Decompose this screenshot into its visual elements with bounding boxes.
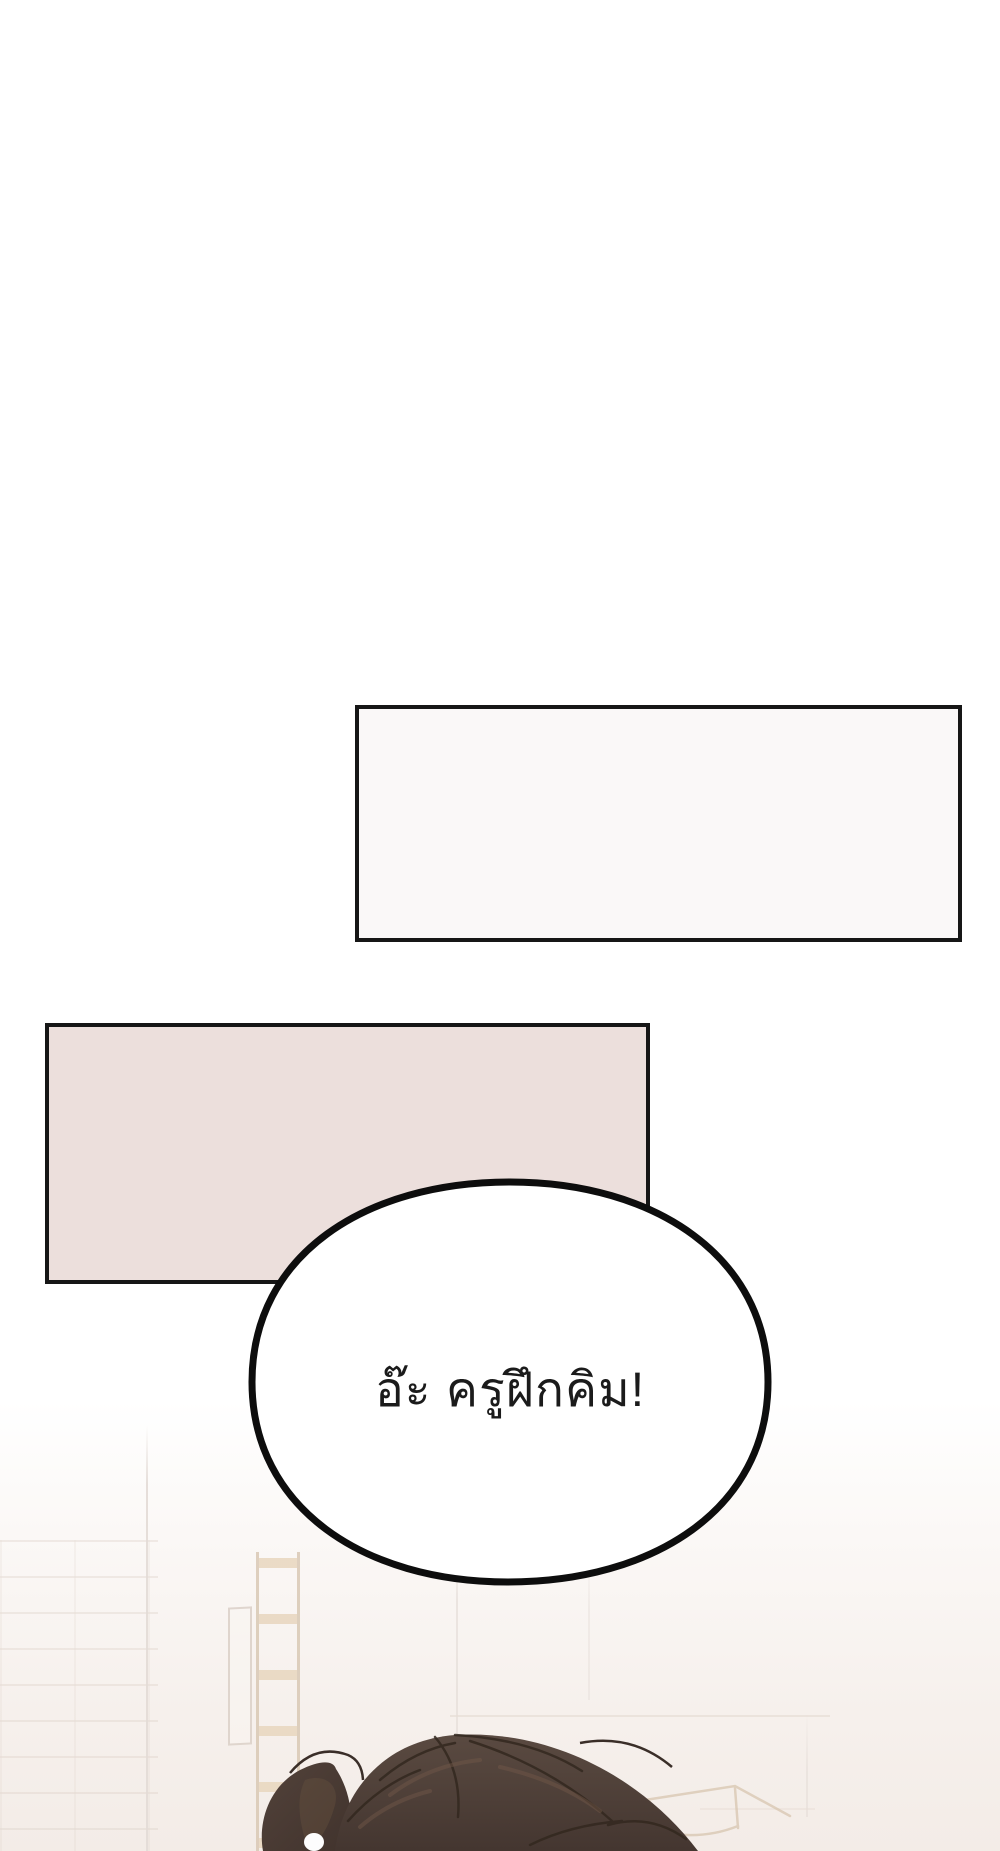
brick-wall-texture	[0, 1540, 158, 1851]
narration-panel-top	[355, 705, 962, 942]
speech-bubble-text: อ๊ะ ครูฝึกคิม!	[240, 1172, 780, 1592]
wall-horizontal-line	[450, 1715, 830, 1717]
hair-accessory	[304, 1833, 324, 1851]
hair-strand	[580, 1741, 672, 1767]
hair-dome	[335, 1734, 698, 1851]
comic-page: อ๊ะ ครูฝึกคิม!	[0, 0, 1000, 1851]
character-hair	[230, 1725, 770, 1851]
wall-seam-line	[806, 1712, 808, 1817]
wall-seam-line	[146, 1425, 148, 1851]
